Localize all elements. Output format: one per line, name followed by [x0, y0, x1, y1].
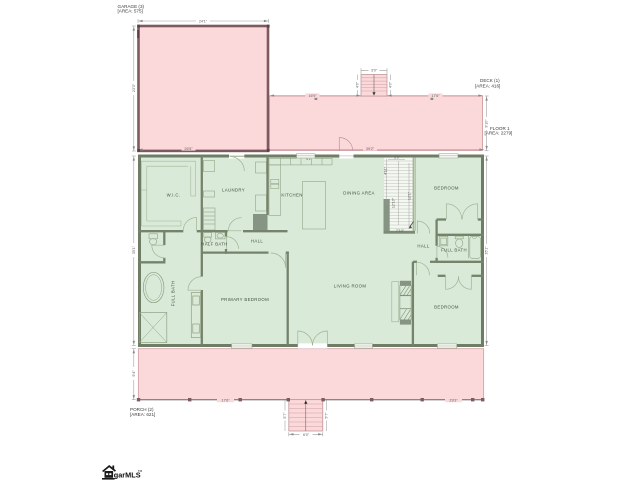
svg-text:HALL: HALL: [417, 244, 429, 249]
svg-text:5'7": 5'7": [283, 412, 287, 419]
svg-text:35'1": 35'1": [132, 245, 136, 254]
svg-text:LAUNDRY: LAUNDRY: [222, 188, 245, 193]
svg-text:[AREA: 416]: [AREA: 416]: [475, 84, 500, 89]
svg-text:W.I.C.: W.I.C.: [167, 193, 181, 198]
svg-text:17'6": 17'6": [221, 399, 230, 403]
svg-text:6'0": 6'0": [303, 433, 310, 437]
svg-text:LIVING ROOM: LIVING ROOM: [334, 284, 367, 289]
svg-text:TM: TM: [138, 469, 143, 473]
svg-text:9'4": 9'4": [132, 370, 136, 377]
svg-text:35'1": 35'1": [485, 246, 489, 255]
svg-text:HALF BATH: HALF BATH: [201, 241, 227, 246]
svg-text:5'7": 5'7": [325, 412, 329, 419]
svg-text:PRIMARY BEDROOM: PRIMARY BEDROOM: [221, 297, 269, 302]
svg-text:12'10": 12'10": [392, 197, 396, 208]
svg-text:39'2": 39'2": [366, 147, 375, 151]
svg-text:9'10": 9'10": [485, 119, 489, 128]
svg-text:DINING AREA: DINING AREA: [343, 191, 375, 196]
svg-text:garMLS: garMLS: [114, 470, 141, 479]
svg-text:[AREA: 621]: [AREA: 621]: [130, 412, 155, 417]
svg-text:26'5": 26'5": [184, 147, 193, 151]
svg-text:4'0": 4'0": [356, 81, 360, 88]
svg-text:4'11": 4'11": [384, 166, 388, 175]
svg-text:BEDROOM: BEDROOM: [434, 305, 459, 310]
svg-text:FULL BATH: FULL BATH: [171, 281, 176, 307]
svg-text:KITCHEN: KITCHEN: [281, 193, 302, 198]
svg-text:12'1": 12'1": [408, 191, 412, 200]
svg-text:16'9": 16'9": [308, 94, 317, 98]
svg-text:24'1": 24'1": [199, 20, 208, 24]
svg-text:DECK (1): DECK (1): [480, 78, 500, 83]
svg-text:3'0": 3'0": [371, 69, 378, 73]
svg-text:[AREA: 575]: [AREA: 575]: [118, 9, 143, 14]
svg-text:4'0": 4'0": [389, 81, 393, 88]
svg-text:HALL: HALL: [251, 239, 263, 244]
svg-text:FULL BATH: FULL BATH: [441, 248, 467, 253]
svg-text:BEDROOM: BEDROOM: [434, 186, 459, 191]
svg-text:29'3": 29'3": [449, 399, 458, 403]
svg-text:17'6": 17'6": [431, 94, 440, 98]
svg-text:7'10": 7'10": [396, 229, 405, 233]
svg-text:23'3": 23'3": [132, 83, 136, 92]
svg-text:3'0": 3'0": [394, 156, 401, 160]
svg-text:[AREA: 2279]: [AREA: 2279]: [485, 131, 513, 136]
